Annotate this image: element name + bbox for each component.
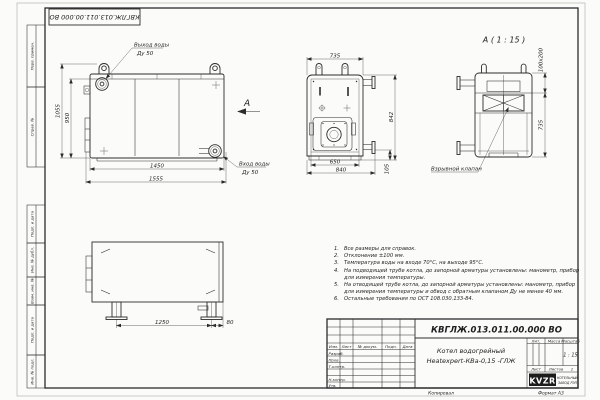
cross-marks [100,81,220,155]
logo-caption-2: ЗАВОД РЭП [558,381,578,385]
top-stamp: КВГЛЖ.013.011.00.000 ВО [49,9,140,25]
strip-podp-data-2: Подп. и дата [30,316,35,343]
note-number: 6. [334,296,344,303]
dim-950: 950 [65,112,71,123]
notes-block: 1. Все размеры для справок. 2. Отклонени… [334,246,580,304]
product-name-line2: Heatexpert-КВа-0,15 -ГЛЖ [427,357,517,365]
lifting-lug-right [210,64,220,75]
header-mass: Масса [548,338,561,343]
inlet-label: Вход воды [239,162,270,168]
detail-view-title: А ( 1 : 15 ) [482,36,525,45]
note-text: На подводящей трубе котла, до запорной а… [344,268,580,282]
water-outlet-flange [96,78,109,91]
strip-perv-primen: Перв. примен. [30,42,35,71]
note-item-5: 5. На отводящей трубе котла, до запорной… [334,282,580,296]
front-view-dimensions: 735 650 840 842 105 [307,54,397,176]
logo-caption-1: КОТЕЛЬНЫЙ [557,375,578,380]
water-inlet-flange [199,145,221,158]
strip-podp-data-1: Подп. и дата [30,210,35,237]
outlet-label: Выход воды [134,43,170,49]
note-number: 1. [334,246,344,253]
front-view: 735 650 840 842 105 [307,54,397,176]
front-flange-stubs [363,77,375,154]
logo-text: KVZR [529,377,555,386]
detail-view-a: А ( 1 : 15 ) 100х200 [431,36,547,173]
valve-label: Взрывной клапан [431,167,482,173]
outlet-dn: Ду 50 [136,51,154,57]
side-view: 1055 950 1450 1555 Выход воды Ду 50 Вход… [56,43,271,184]
dim-1250: 1250 [155,320,169,326]
row-prov: Пров. [329,357,340,362]
col-list: Лист [341,344,353,349]
strip-inv-podl: Инв. № подл. [30,358,35,384]
footer-format: Формат А3 [538,391,564,397]
dim-80: 80 [227,320,234,326]
explosion-valve [483,95,524,111]
sheets-value: 1 [571,366,573,371]
drawing-sheet-svg: Перв. примен. Справ. № Подп. и дата Инв.… [0,0,600,400]
strip-vzam-inv: Взам. инв. № [30,278,35,304]
note-text: Все размеры для справок. [344,246,580,253]
sheets-label: Листов [548,366,564,371]
valve-callout: Взрывной клапан [431,108,509,173]
corner-ticks [101,249,215,294]
note-number: 5. [334,282,344,296]
col-doc: № докум. [357,344,377,349]
note-number: 2. [334,253,344,260]
note-item-1: 1. Все размеры для справок. [334,246,580,253]
note-item-6: 6. Остальные требования по ОСТ 108.030.1… [334,296,580,303]
note-text: Температура воды на входе 70°С, на выход… [344,260,580,267]
note-item-2: 2. Отклонение ±100 мм. [334,253,580,260]
doc-number: КВГЛЖ.013.011.00.000 ВО [431,326,562,336]
dim-735-front: 735 [330,54,341,60]
inlet-dn: Ду 50 [241,170,259,176]
dim-105: 105 [385,163,391,174]
note-item-3: 3. Температура воды на входе 70°С, на вы… [334,260,580,267]
detail-view-dimensions: 100х200 735 [532,47,547,157]
row-utv: Утв. [329,383,337,388]
note-text: Отклонение ±100 мм. [344,253,580,260]
footer-captions: Копировал Формат А3 [428,391,564,397]
note-text: Остальные требования по ОСТ 108.030.133-… [344,296,580,303]
note-number: 4. [334,268,344,282]
factory-logo: KVZR КОТЕЛЬНЫЙ ЗАВОД РЭП [529,374,578,387]
inlet-callout: Вход воды Ду 50 [224,157,271,177]
view-direction-arrow: А [238,99,260,112]
col-izm: Изм. [329,344,338,349]
sheet-label: Лист [530,366,542,371]
row-nkontr: Н.контр. [329,377,346,382]
product-name-line1: Котел водогрейный [437,347,505,355]
strip-sprav-no: Справ. № [30,118,35,137]
header-lit: Лит. [531,338,541,343]
rear-view: 1250 80 [86,242,234,328]
header-scale: Масштаб [561,338,580,343]
view-letter: А [243,99,250,109]
dim-1450: 1450 [150,164,164,170]
margin-strips: Перв. примен. Справ. № Подп. и дата Инв.… [27,25,45,388]
note-text: На отводящей трубе котла, до запорной ар… [344,282,580,296]
dim-1555: 1555 [149,177,163,183]
dim-842: 842 [389,111,395,122]
note-item-4: 4. На подводящей трубе котла, до запорно… [334,268,580,282]
row-razrab: Разраб. [329,351,344,356]
note-number: 3. [334,260,344,267]
dim-840: 840 [336,168,347,174]
side-view-dimensions: 1055 950 1450 1555 [56,64,227,184]
row-tkontr: Т.контр. [329,364,346,369]
drawing-sheet: Перв. примен. Справ. № Подп. и дата Инв.… [0,0,600,400]
dim-1055: 1055 [56,104,62,118]
burner-door [310,118,356,151]
footer-copied: Копировал [428,391,454,397]
top-stamp-number: КВГЛЖ.013.011.00.000 ВО [50,13,140,21]
detail-flange-stubs [457,77,475,155]
dim-100x200: 100х200 [539,47,545,72]
col-podp: Подп. [385,344,397,349]
front-marks [319,105,351,112]
dim-650: 650 [330,160,341,166]
sheet-frame [17,3,585,396]
scale-value: 1 : 15 [563,353,577,359]
dim-735-detail: 735 [539,119,545,130]
strip-inv-dubl: Инв. № дубл. [30,247,35,273]
support-legs [106,302,222,320]
outlet-callout: Выход воды Ду 50 [106,43,170,79]
title-block: КВГЛЖ.013.011.00.000 ВО Котел водогрейны… [327,319,580,388]
lifting-lug-left [99,64,109,75]
col-data: Дата [401,344,413,349]
